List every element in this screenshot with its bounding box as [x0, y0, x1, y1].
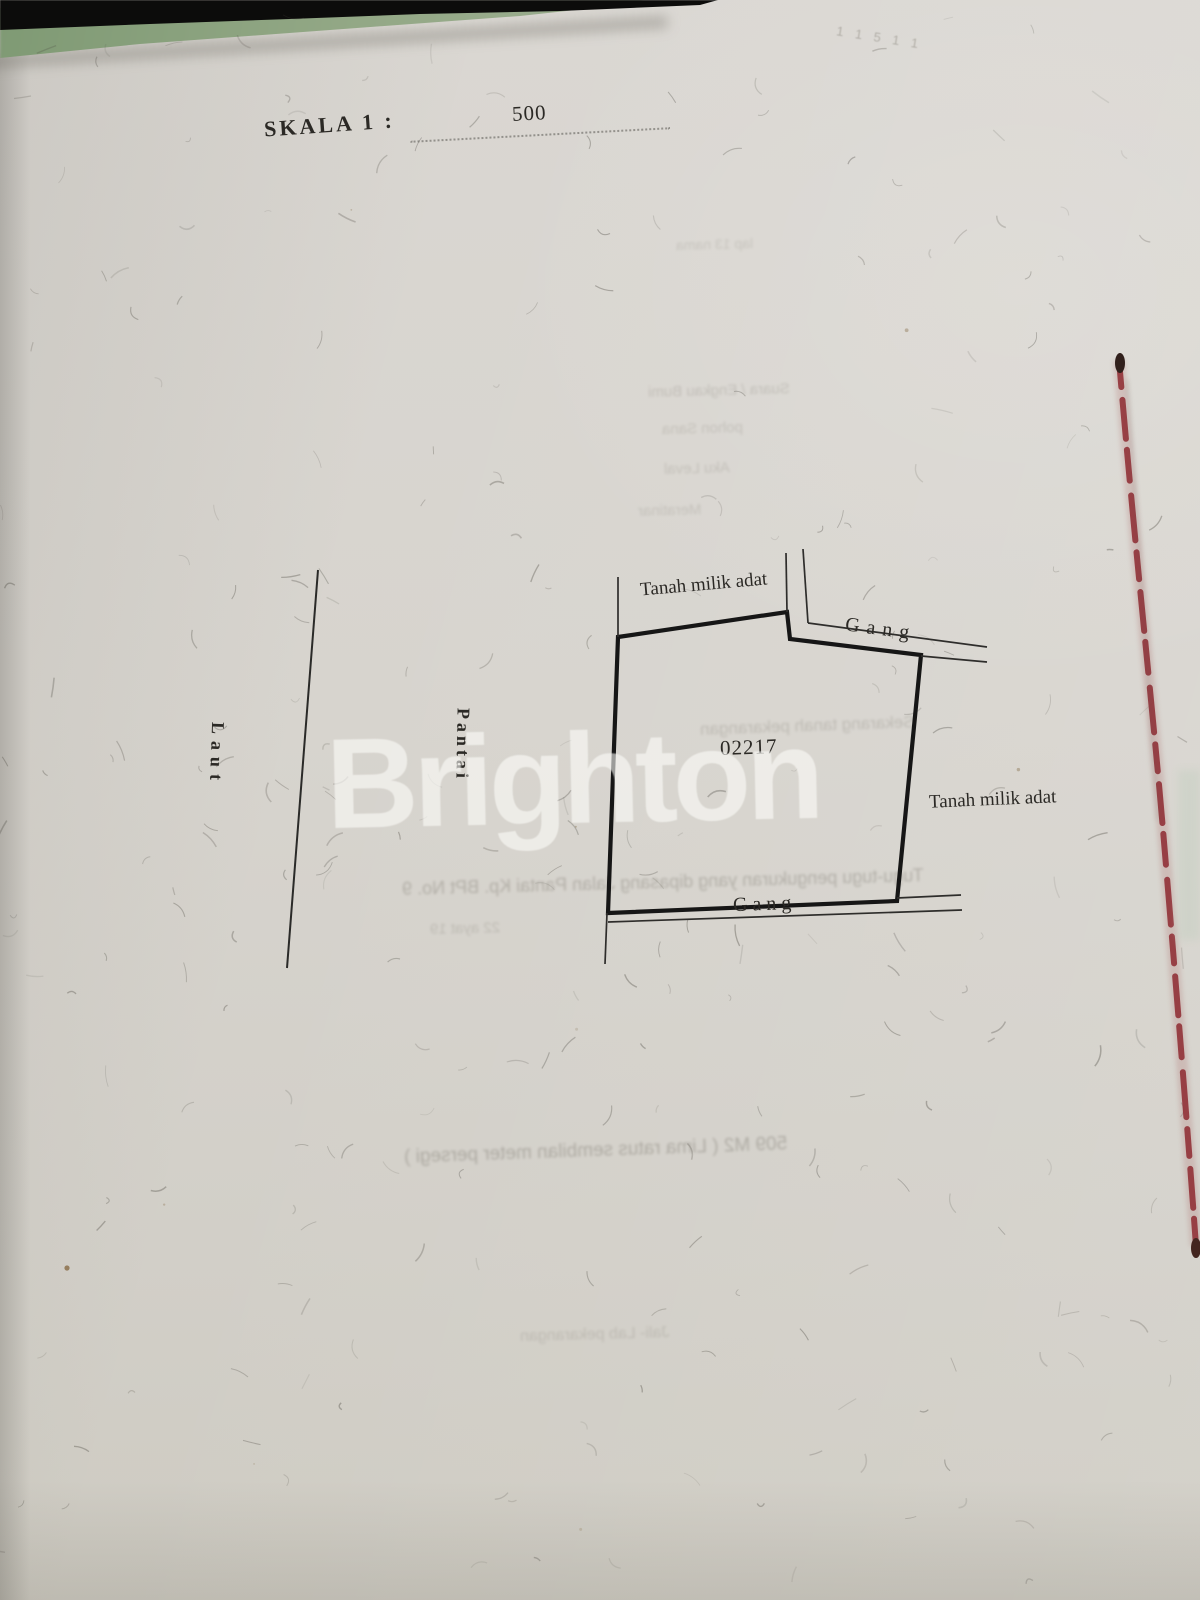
table-edge-sliver	[1178, 770, 1200, 940]
scanned-land-survey-photo: 1 1 5 1 1 lap 13 nama Suara / Engkau Bum…	[0, 0, 1200, 1600]
red-binding-thread	[0, 0, 1200, 1600]
binding-knot-top	[1115, 353, 1125, 373]
